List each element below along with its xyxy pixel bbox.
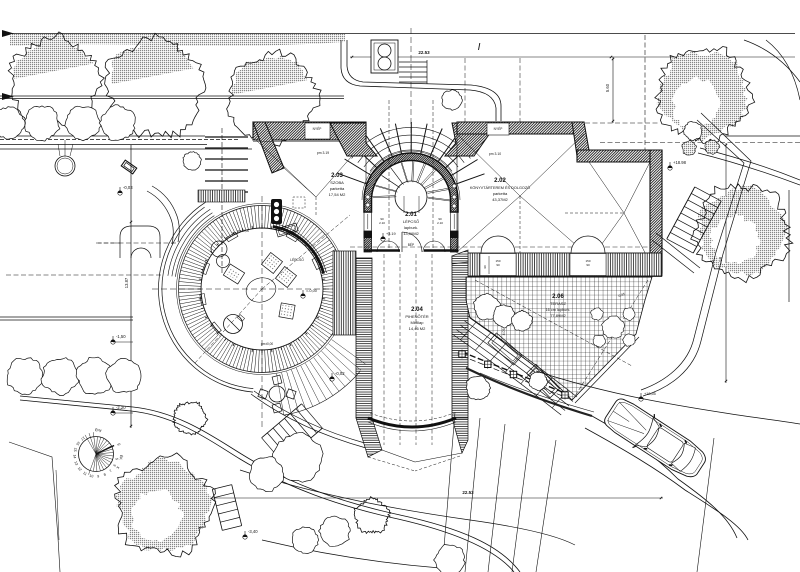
svg-text:2.01: 2.01 — [405, 212, 417, 218]
svg-text:+18.98: +18.98 — [673, 160, 687, 165]
svg-text:LÉPCSŐ: LÉPCSŐ — [290, 257, 304, 262]
svg-text:NYÉP: NYÉP — [313, 126, 322, 131]
svg-text:13,06M2: 13,06M2 — [403, 231, 419, 236]
svg-text:I: I — [478, 42, 481, 53]
svg-text:2.02: 2.02 — [494, 178, 506, 184]
svg-text:pm 3.10: pm 3.10 — [489, 152, 501, 156]
svg-text:BÉP: BÉP — [408, 242, 414, 247]
svg-text:9: 9 — [97, 474, 99, 478]
svg-text:17,54 M2: 17,54 M2 — [329, 192, 346, 197]
svg-text:90: 90 — [586, 263, 590, 267]
svg-text:lapburk.: lapburk. — [404, 225, 418, 230]
svg-text:43,37M2: 43,37M2 — [492, 197, 508, 202]
svg-text:+18,55: +18,55 — [644, 392, 656, 396]
svg-text:KÖNYVTÁRTEREM ÉS DOLGOZÓ: KÖNYVTÁRTEREM ÉS DOLGOZÓ — [470, 185, 530, 190]
svg-text:ÉNy: ÉNy — [95, 427, 102, 433]
svg-text:Mkőlap: Mkőlap — [411, 320, 425, 325]
svg-text:77,89M2: 77,89M2 — [550, 313, 566, 318]
svg-text:2.10: 2.10 — [379, 221, 385, 225]
svg-text:-0,03: -0,03 — [123, 185, 133, 190]
svg-text:13.87: 13.87 — [124, 277, 129, 288]
svg-text:+3.19: +3.19 — [386, 232, 396, 236]
svg-text:parketta: parketta — [330, 186, 345, 191]
svg-text:LÉPCSŐ: LÉPCSŐ — [403, 219, 419, 224]
svg-text:PIHENŐTÉR: PIHENŐTÉR — [405, 314, 428, 319]
svg-text:14,46 M2: 14,46 M2 — [409, 326, 426, 331]
svg-text:pm 3.19: pm 3.19 — [317, 151, 329, 155]
svg-text:22.53: 22.53 — [418, 50, 430, 55]
svg-text:2.10: 2.10 — [437, 221, 443, 225]
svg-text:5.60: 5.60 — [605, 83, 610, 92]
svg-text:-0,02: -0,02 — [335, 371, 345, 376]
svg-text:-2,20: -2,20 — [116, 405, 126, 410]
svg-text:parketta: parketta — [493, 191, 508, 196]
svg-text:2.06: 2.06 — [552, 294, 564, 300]
svg-text:=-0,00: =-0,00 — [306, 289, 317, 293]
svg-text:pm±0,00: pm±0,00 — [261, 342, 274, 346]
svg-text:90: 90 — [496, 263, 500, 267]
svg-text:2.04: 2.04 — [411, 307, 423, 313]
svg-text:SZOBA: SZOBA — [330, 180, 344, 185]
svg-text:NYÉP: NYÉP — [494, 126, 503, 131]
svg-text:2.03: 2.03 — [331, 173, 343, 179]
svg-text:90: 90 — [483, 265, 487, 269]
svg-text:TERASZ: TERASZ — [550, 301, 566, 306]
svg-text:16 cm lapburk.: 16 cm lapburk. — [546, 308, 571, 312]
svg-text:pm±0,00: pm±0,00 — [237, 229, 250, 233]
svg-text:-3,40: -3,40 — [248, 529, 258, 534]
svg-text:4.05: 4.05 — [502, 329, 506, 336]
svg-text:-1,50: -1,50 — [116, 334, 126, 339]
svg-text:14: 14 — [72, 454, 76, 458]
svg-text:10: 10 — [89, 474, 94, 479]
